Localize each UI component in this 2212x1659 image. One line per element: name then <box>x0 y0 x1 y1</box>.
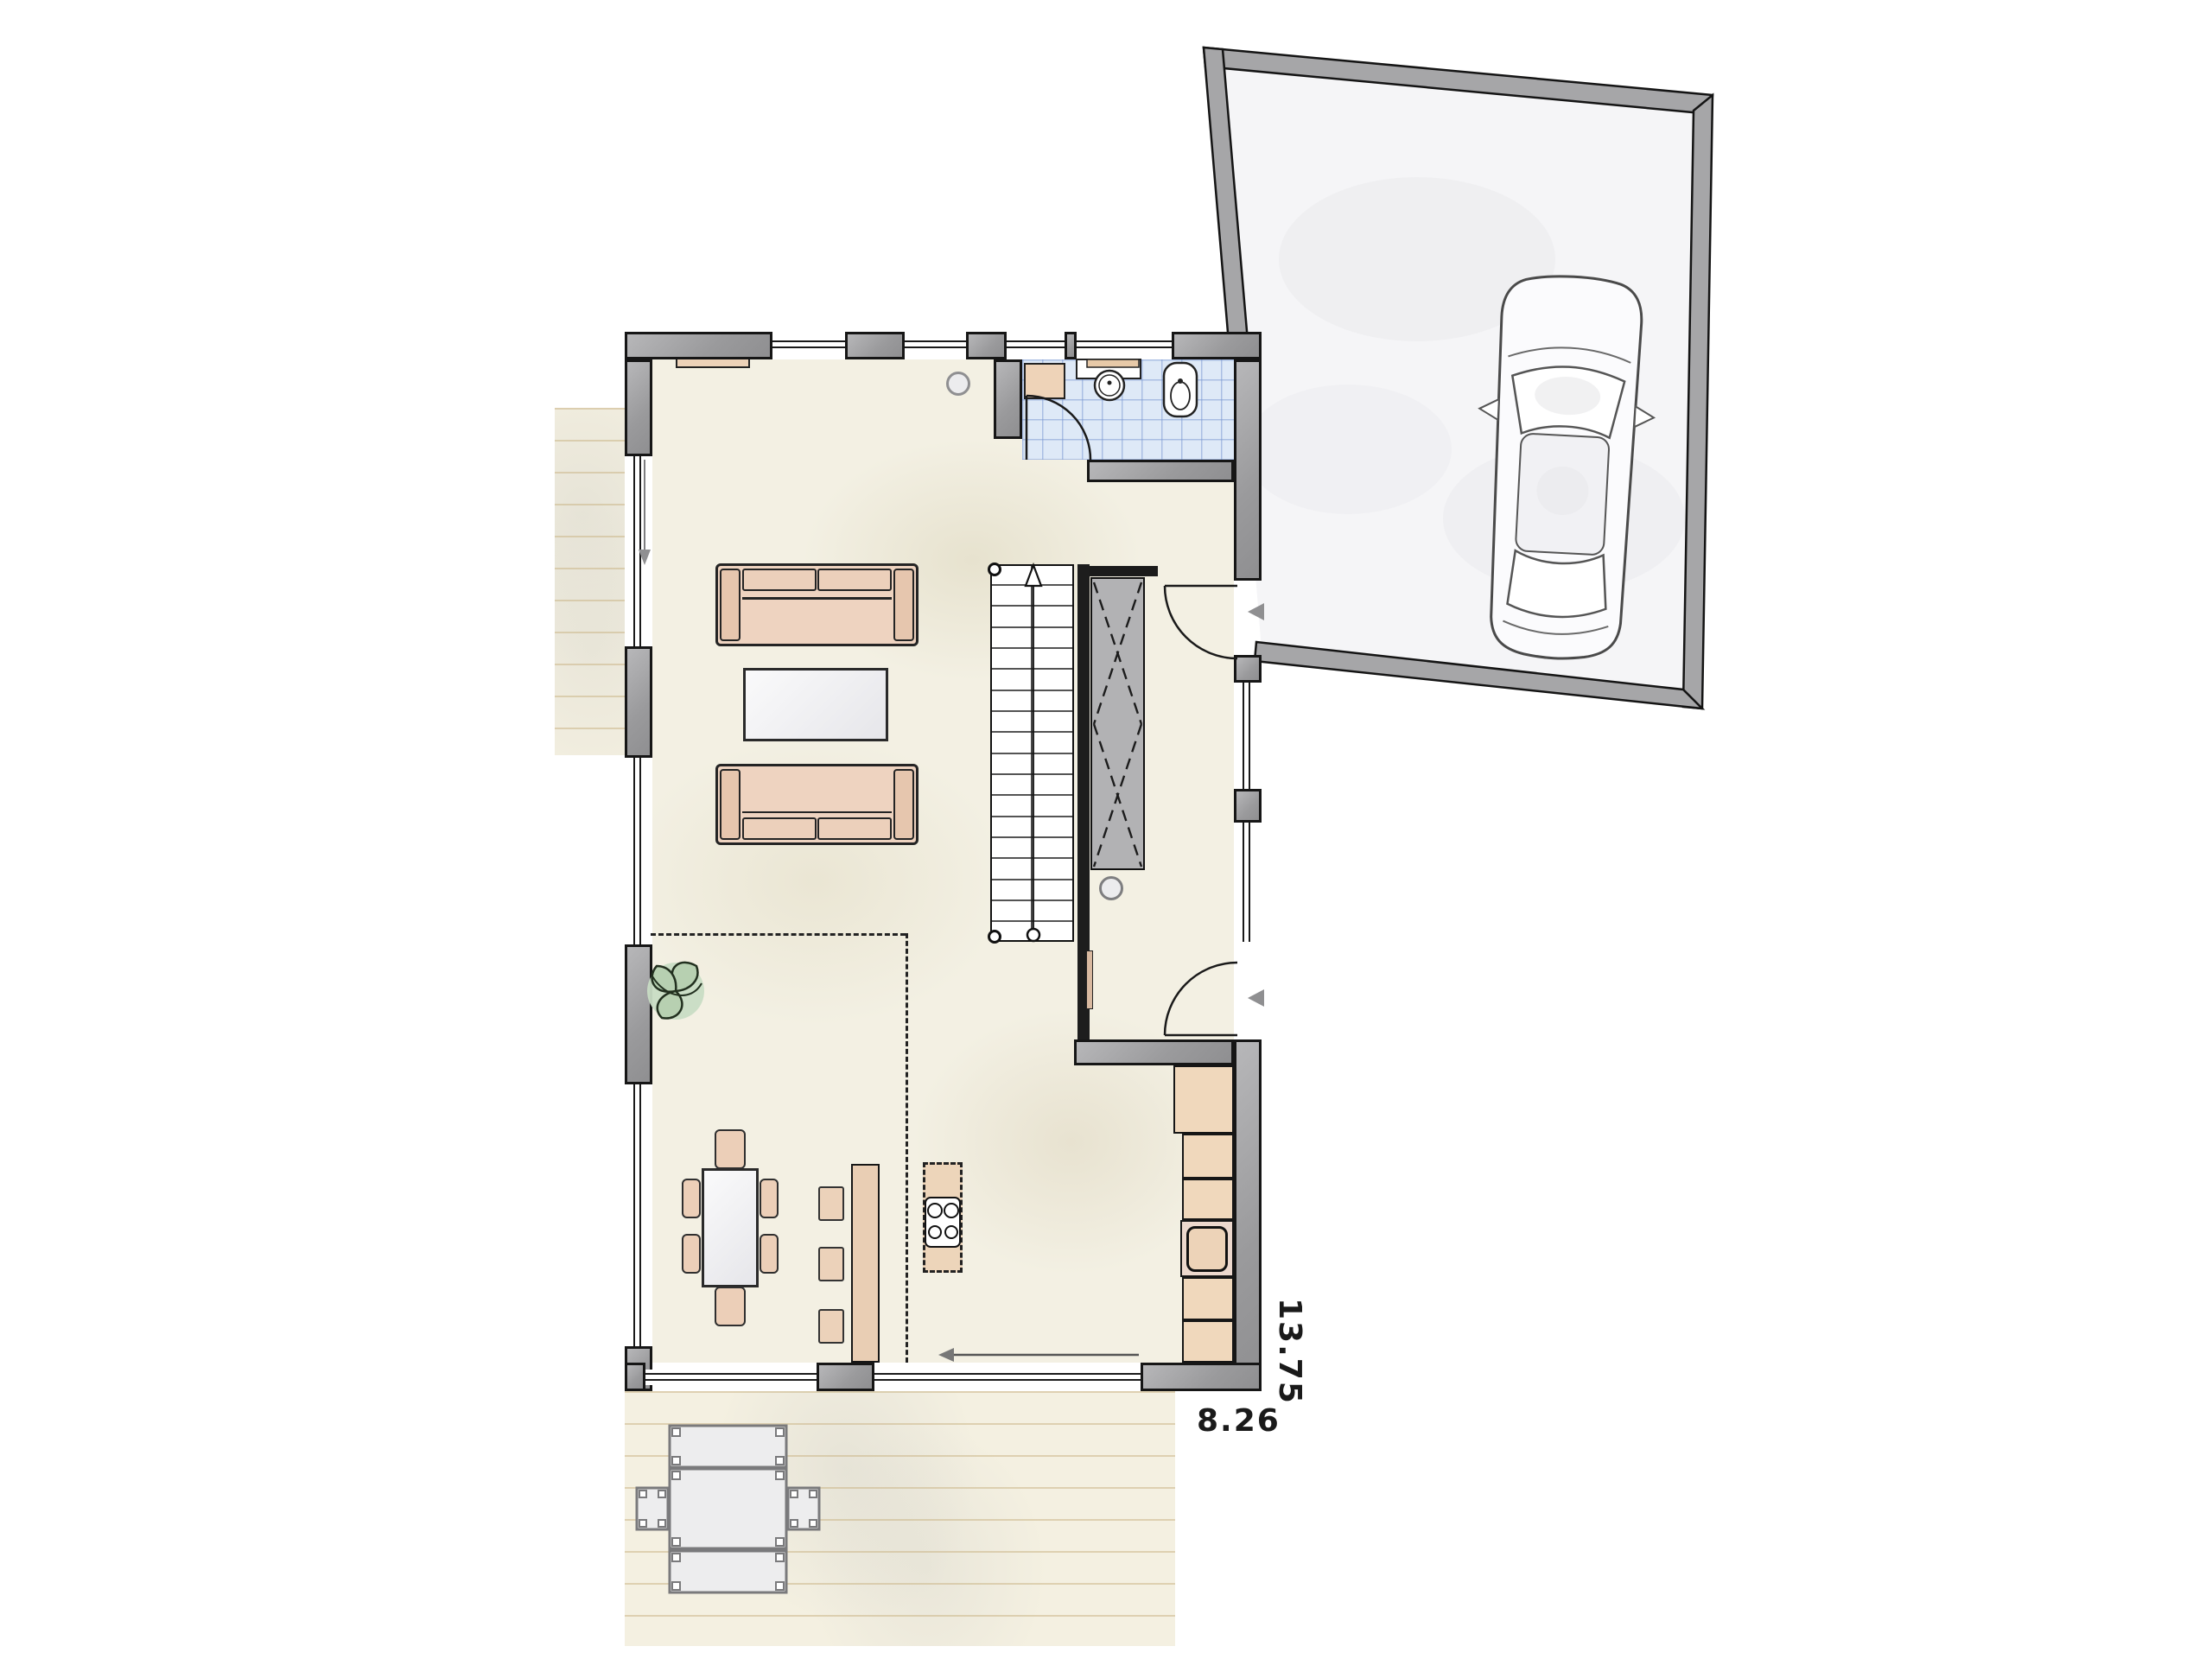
window-right-2 <box>1239 823 1255 942</box>
kitchen-tall-cabinet <box>1173 1065 1234 1134</box>
kitchen-counter-4 <box>1182 1320 1234 1363</box>
sofa-back-cushion <box>817 569 892 591</box>
wall-bottom-2 <box>817 1363 874 1391</box>
wall-top-3 <box>966 332 1007 359</box>
stair-trim <box>1086 950 1093 1009</box>
car-icon <box>1466 272 1661 663</box>
wall-right-1 <box>1234 359 1262 581</box>
side-terrace <box>555 408 625 755</box>
terrace-door-right <box>874 1370 1141 1385</box>
sofa-armrest <box>720 569 741 641</box>
kitchen-island <box>923 1162 963 1273</box>
dimension-height-label: 13.75 <box>1272 1298 1306 1393</box>
wall-top-5 <box>1172 332 1262 359</box>
terrace-door-left <box>645 1370 817 1385</box>
sofa-armrest <box>893 769 914 840</box>
wall-bathroom-left <box>994 359 1022 439</box>
window-bathroom-1 <box>1007 337 1065 353</box>
window-top-2 <box>905 337 966 353</box>
ceiling-lamp-hall <box>1099 876 1123 900</box>
dining-chair-left-2 <box>682 1234 701 1274</box>
ceiling-lamp-living <box>946 372 970 396</box>
wall-bathroom-bottom <box>1087 460 1234 482</box>
window-left-2 <box>630 758 645 944</box>
dining-chair-top <box>715 1129 746 1169</box>
wall-left-1 <box>625 359 652 456</box>
wall-right-4 <box>1234 1039 1262 1391</box>
window-bathroom-2 <box>1077 337 1172 353</box>
window-right-1 <box>1239 683 1255 789</box>
staircase <box>990 564 1074 942</box>
sofa-back-cushion <box>817 817 892 840</box>
wall-left-3 <box>625 944 652 1084</box>
bar-stool-1 <box>818 1186 844 1221</box>
bar-stool-2 <box>818 1247 844 1281</box>
wall-bottom-3 <box>1141 1363 1262 1391</box>
garage-floor <box>1214 60 1699 696</box>
wall-right-3 <box>1234 789 1262 823</box>
sofa-seat-line <box>742 811 892 814</box>
floor-plan-canvas: 8.26 13.75 <box>0 0 2212 1659</box>
sofa-bottom <box>715 764 918 845</box>
wall-top-2 <box>845 332 905 359</box>
garage-wall-right <box>1683 95 1713 709</box>
dashed-divider-vertical <box>906 933 908 1363</box>
dashed-divider-horizontal <box>651 933 906 936</box>
dining-table <box>702 1168 759 1287</box>
wall-left-2 <box>625 646 652 758</box>
wall-hall-kitchen <box>1074 1039 1234 1065</box>
sofa-seat-line <box>742 597 892 600</box>
dining-chair-left-1 <box>682 1179 701 1218</box>
kitchen-counter-1 <box>1182 1134 1234 1179</box>
rear-terrace <box>625 1391 1175 1646</box>
dining-chair-bottom <box>715 1287 746 1326</box>
window-left-3 <box>630 1084 645 1346</box>
window-top-1 <box>772 337 845 353</box>
wardrobe-closet <box>1090 577 1145 870</box>
dining-chair-right-1 <box>760 1179 779 1218</box>
wall-bottom-1 <box>625 1363 645 1391</box>
kitchen-sink <box>1186 1226 1228 1272</box>
wall-right-2 <box>1234 655 1262 683</box>
sofa-top <box>715 563 918 646</box>
kitchen-counter-2 <box>1182 1179 1234 1220</box>
sofa-back-cushion <box>742 817 817 840</box>
dimension-width-label: 8.26 <box>1197 1403 1281 1439</box>
bathroom-cabinet <box>1024 363 1065 399</box>
entry-arrow-icon <box>1248 603 1264 620</box>
dining-chair-right-2 <box>760 1234 779 1274</box>
kitchen-counter-3 <box>1182 1277 1234 1320</box>
garage-wall-bottom <box>1255 642 1702 709</box>
wall-top-4 <box>1065 332 1077 359</box>
garage-wall-left <box>1204 48 1249 363</box>
wall-top-1 <box>625 332 772 359</box>
sofa-armrest <box>720 769 741 840</box>
window-left-1 <box>630 456 645 646</box>
entry-arrow-icon <box>1248 989 1264 1007</box>
coffee-table <box>743 668 888 741</box>
bar-counter <box>851 1164 880 1363</box>
sofa-back-cushion <box>742 569 817 591</box>
garage-wall-top <box>1204 48 1713 114</box>
bar-stool-3 <box>818 1309 844 1344</box>
sofa-armrest <box>893 569 914 641</box>
